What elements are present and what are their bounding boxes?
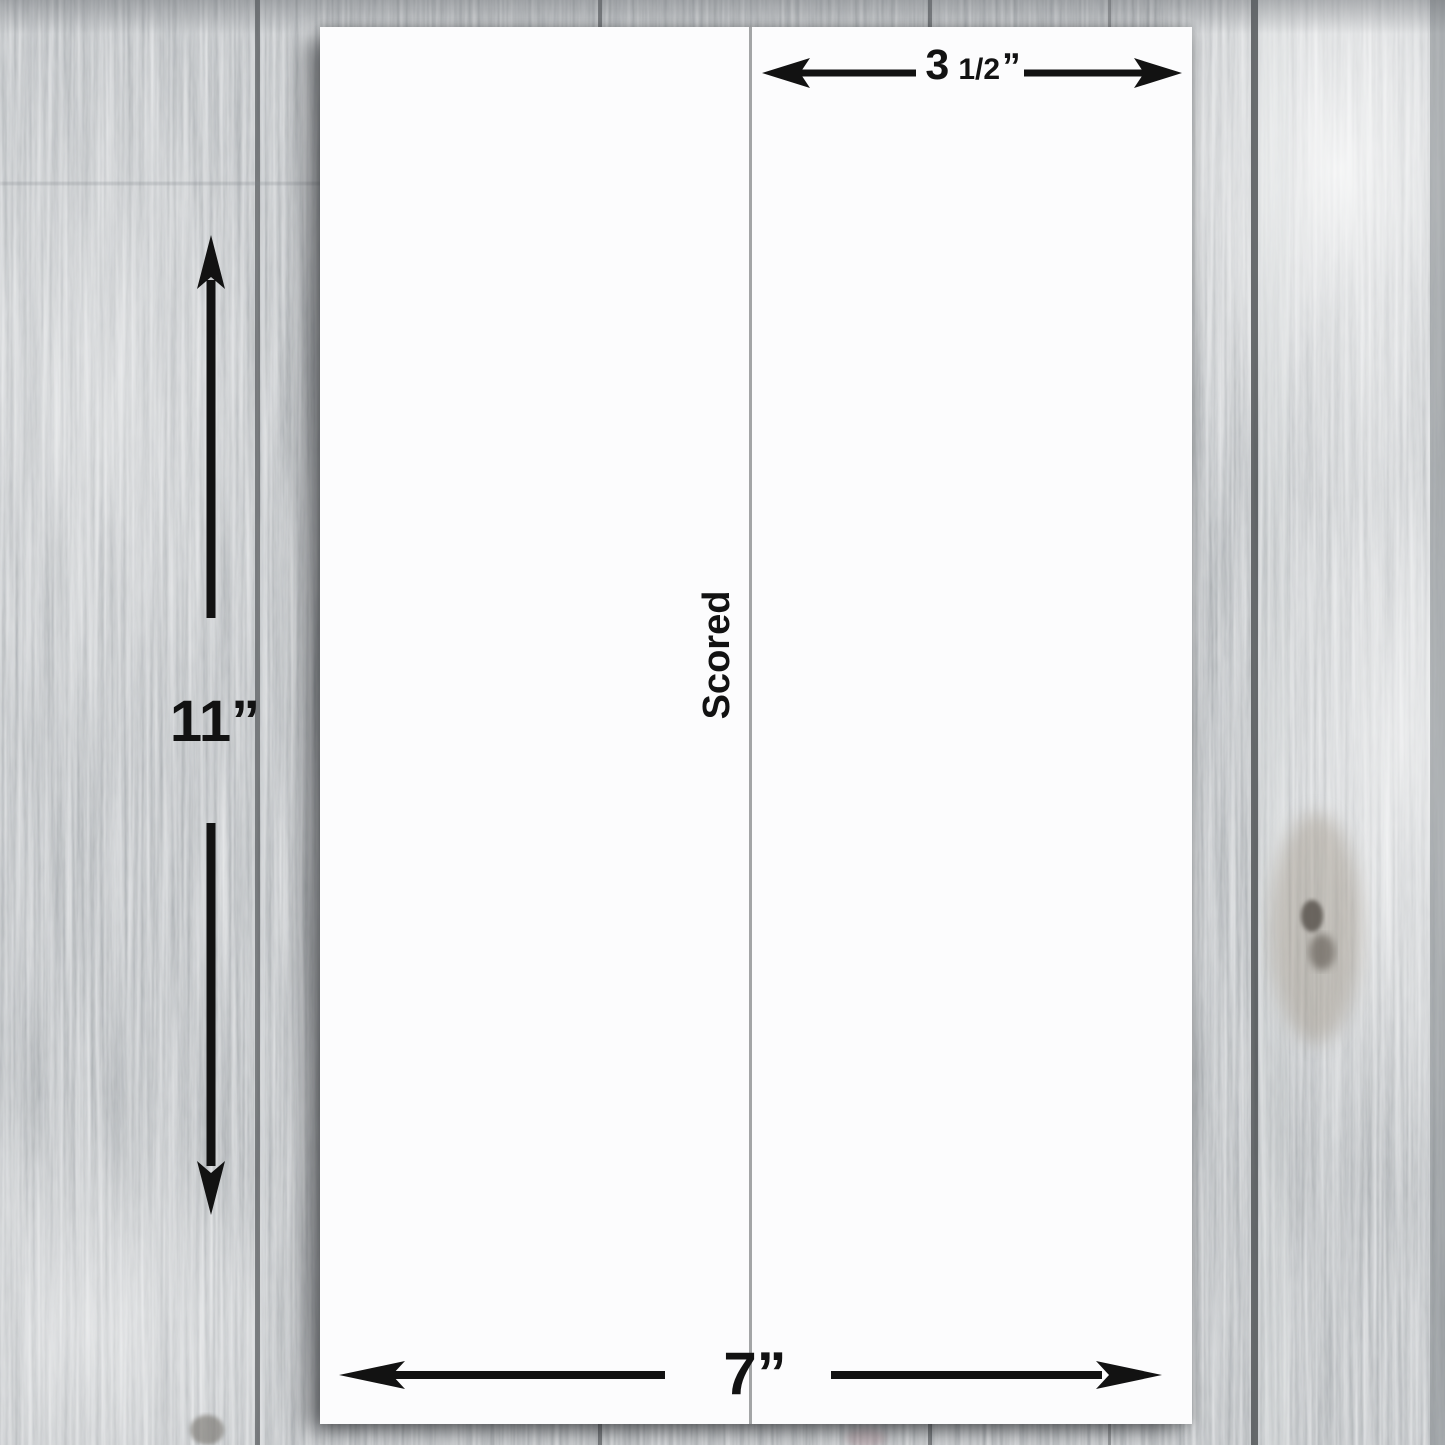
- plank-seam: [0, 182, 322, 185]
- height-label-text: 11”: [170, 689, 260, 754]
- wood-knot: [1270, 813, 1362, 1043]
- bottom-width-label: 7”: [695, 1344, 815, 1404]
- scored-label: Scored: [698, 591, 736, 720]
- paper-sheet: [320, 27, 1192, 1424]
- bottom-width-label-text: 7”: [723, 1340, 786, 1407]
- plank-edge-right: [1430, 0, 1445, 1445]
- scored-label-text: Scored: [696, 591, 738, 720]
- top-width-unit: ”: [1002, 48, 1021, 85]
- wood-knot-small: [190, 1415, 224, 1445]
- product-image: Scored 3 1/2 ” 11” 7”: [0, 0, 1445, 1445]
- plank-gap: [1251, 0, 1289, 1445]
- top-width-fraction: 1/2: [958, 55, 1000, 85]
- top-width-label: 3 1/2 ”: [873, 44, 1073, 87]
- top-width-whole: 3: [925, 44, 949, 87]
- height-label: 11”: [150, 693, 280, 751]
- score-line: [749, 27, 752, 1424]
